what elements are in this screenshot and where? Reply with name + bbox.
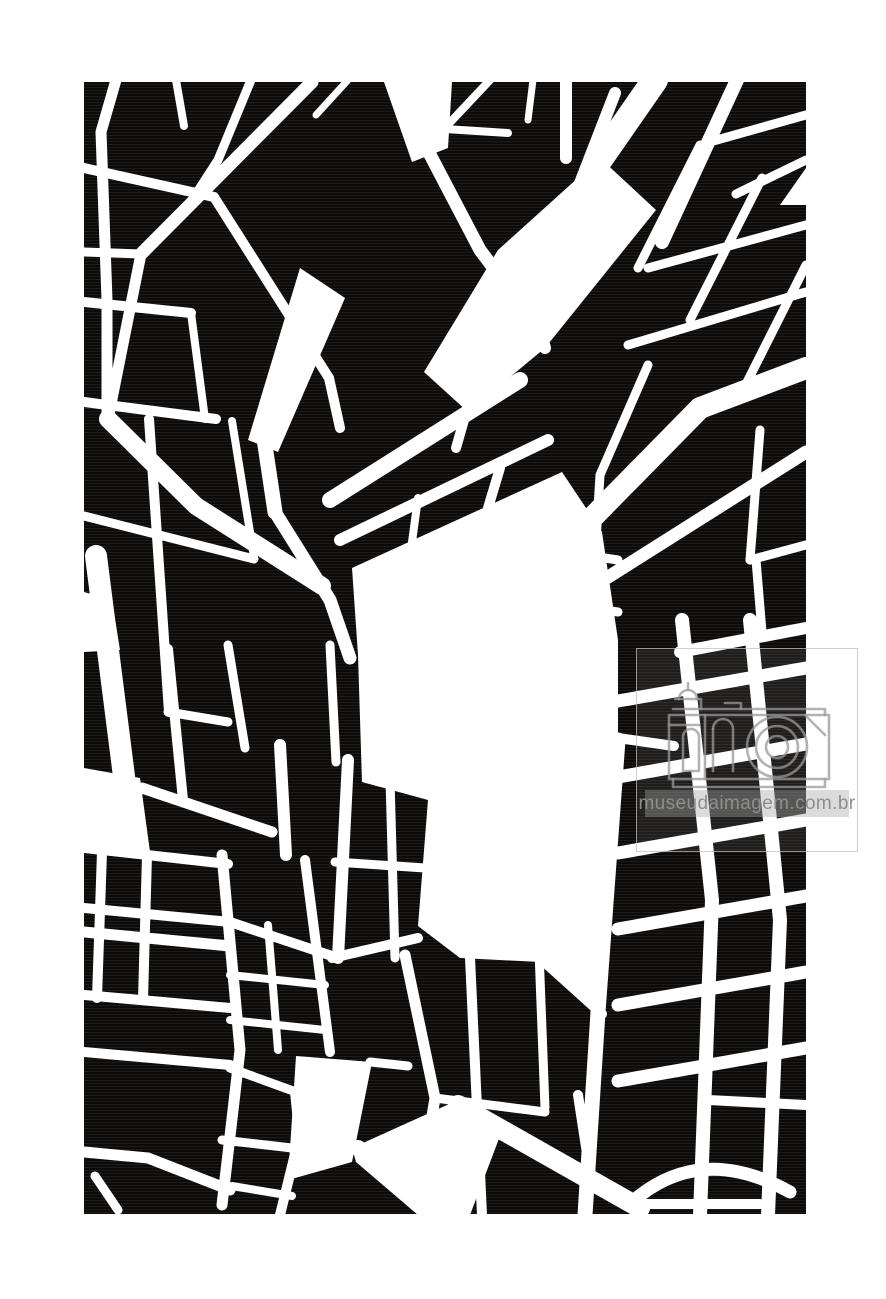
street: [97, 852, 102, 998]
watermark-box: museudaimagem.com.br: [636, 648, 858, 852]
street: [330, 645, 336, 762]
camera-logo-icon: [665, 671, 833, 793]
watermark-url: museudaimagem.com.br: [638, 793, 855, 815]
street: [445, 129, 508, 133]
street: [528, 80, 533, 120]
street: [370, 1062, 408, 1066]
street: [335, 862, 425, 868]
watermark-bar: museudaimagem.com.br: [645, 790, 849, 817]
open-area: [290, 1092, 358, 1152]
street: [143, 855, 147, 1000]
street: [84, 252, 141, 254]
street: [708, 1100, 806, 1105]
street: [540, 330, 545, 348]
photo-page: museudaimagem.com.br: [0, 0, 886, 1299]
city-map-artwork: museudaimagem.com.br: [0, 0, 886, 1299]
street: [280, 745, 286, 855]
street: [390, 780, 395, 958]
